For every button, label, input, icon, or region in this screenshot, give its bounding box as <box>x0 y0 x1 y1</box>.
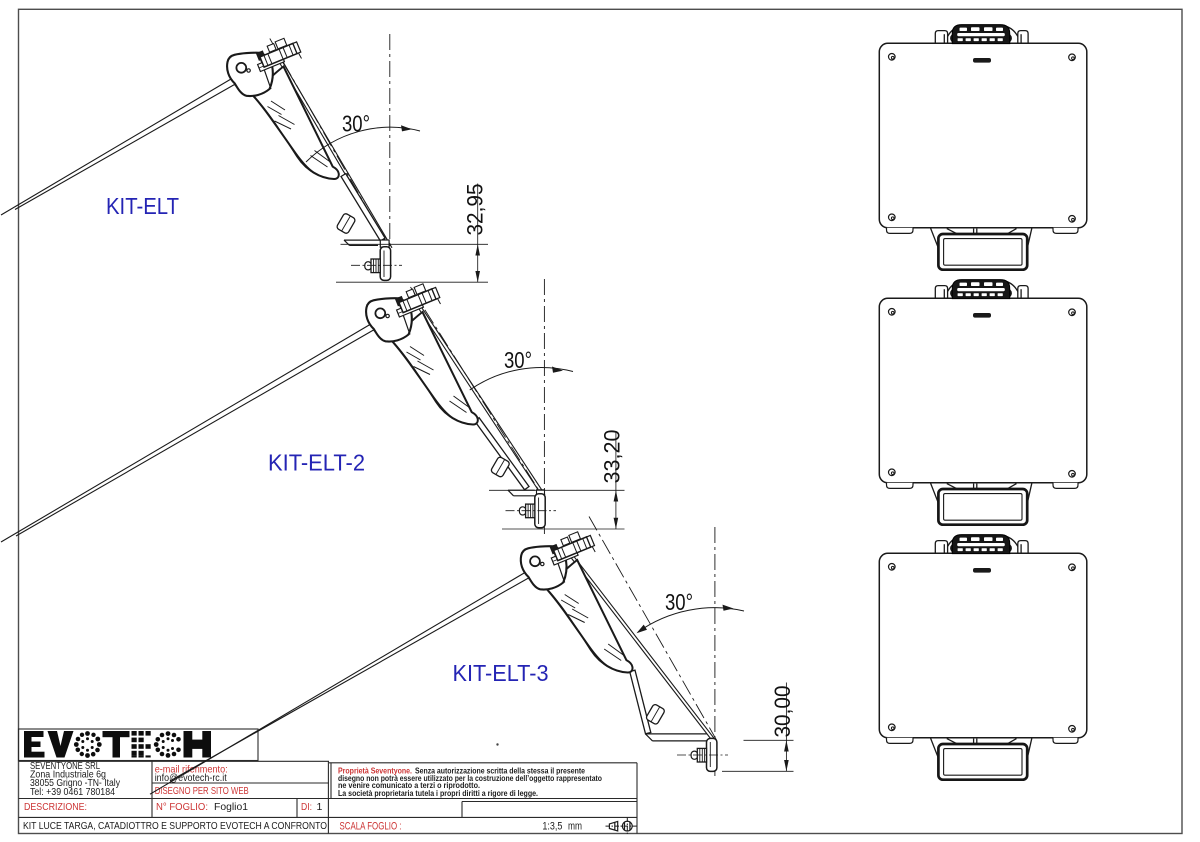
svg-text:La società proprietaria tutela: La società proprietaria tutela i propri … <box>338 789 538 798</box>
svg-text:33,20: 33,20 <box>599 430 624 484</box>
svg-text:KIT LUCE TARGA, CATADIOTTRO E: KIT LUCE TARGA, CATADIOTTRO E SUPPORTO E… <box>23 821 327 832</box>
svg-text:DISEGNO PER SITO WEB: DISEGNO PER SITO WEB <box>155 785 249 797</box>
svg-text:1:3,5: 1:3,5 <box>542 820 562 832</box>
svg-text:KIT-ELT: KIT-ELT <box>106 193 179 219</box>
svg-text:Tel: +39 0461 780184: Tel: +39 0461 780184 <box>30 786 115 798</box>
svg-text:30°: 30° <box>342 111 370 137</box>
svg-text:KIT-ELT-2: KIT-ELT-2 <box>268 450 365 476</box>
svg-text:DESCRIZIONE:: DESCRIZIONE: <box>24 801 87 813</box>
svg-text:KIT-ELT-3: KIT-ELT-3 <box>453 660 549 686</box>
svg-text:Foglio1: Foglio1 <box>214 801 248 813</box>
svg-text:30°: 30° <box>504 347 532 373</box>
svg-text:1: 1 <box>317 801 323 813</box>
svg-text:mm: mm <box>568 820 582 832</box>
svg-text:info@evotech-rc.it: info@evotech-rc.it <box>155 772 227 784</box>
svg-text:32,95: 32,95 <box>463 184 488 236</box>
svg-text:30°: 30° <box>665 589 693 615</box>
svg-text:N° FOGLIO:: N° FOGLIO: <box>156 801 208 813</box>
svg-text:SCALA FOGLIO :: SCALA FOGLIO : <box>340 820 402 832</box>
svg-text:DI:: DI: <box>301 801 312 813</box>
svg-text:30,00: 30,00 <box>770 686 795 738</box>
